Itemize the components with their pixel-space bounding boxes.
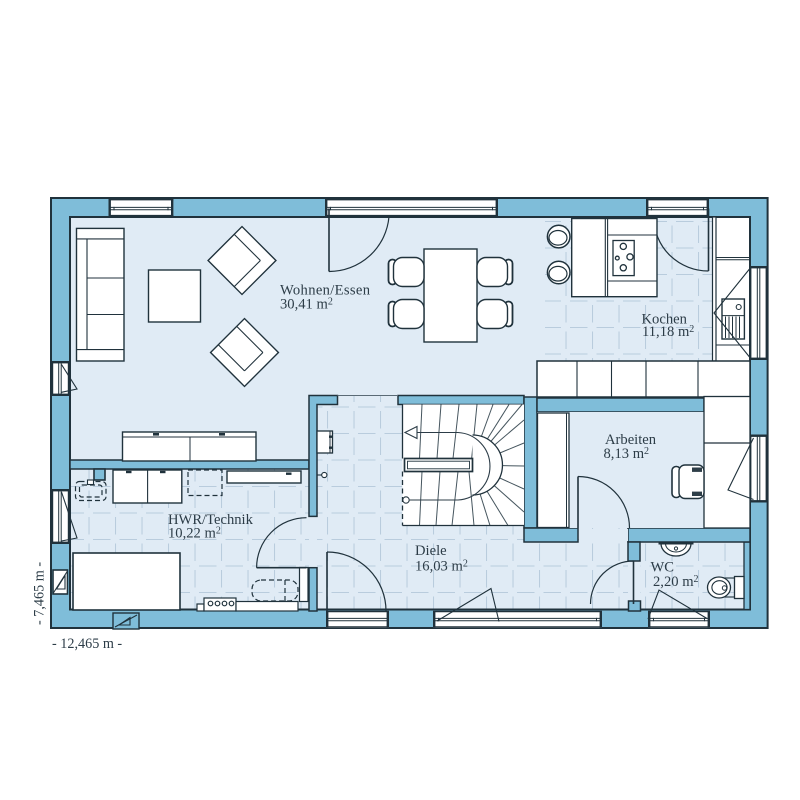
- svg-text:- 7,465 m -: - 7,465 m -: [32, 562, 48, 625]
- svg-text:Diele: Diele: [415, 543, 447, 559]
- svg-text:- 12,465 m -: - 12,465 m -: [52, 636, 122, 652]
- svg-text:11,18 m2: 11,18 m2: [642, 324, 694, 340]
- svg-text:2,20 m2: 2,20 m2: [653, 574, 699, 590]
- svg-text:10,22 m2: 10,22 m2: [168, 526, 221, 542]
- svg-text:8,13 m2: 8,13 m2: [604, 446, 650, 462]
- svg-text:30,41 m2: 30,41 m2: [280, 297, 333, 313]
- svg-text:16,03 m2: 16,03 m2: [415, 559, 468, 575]
